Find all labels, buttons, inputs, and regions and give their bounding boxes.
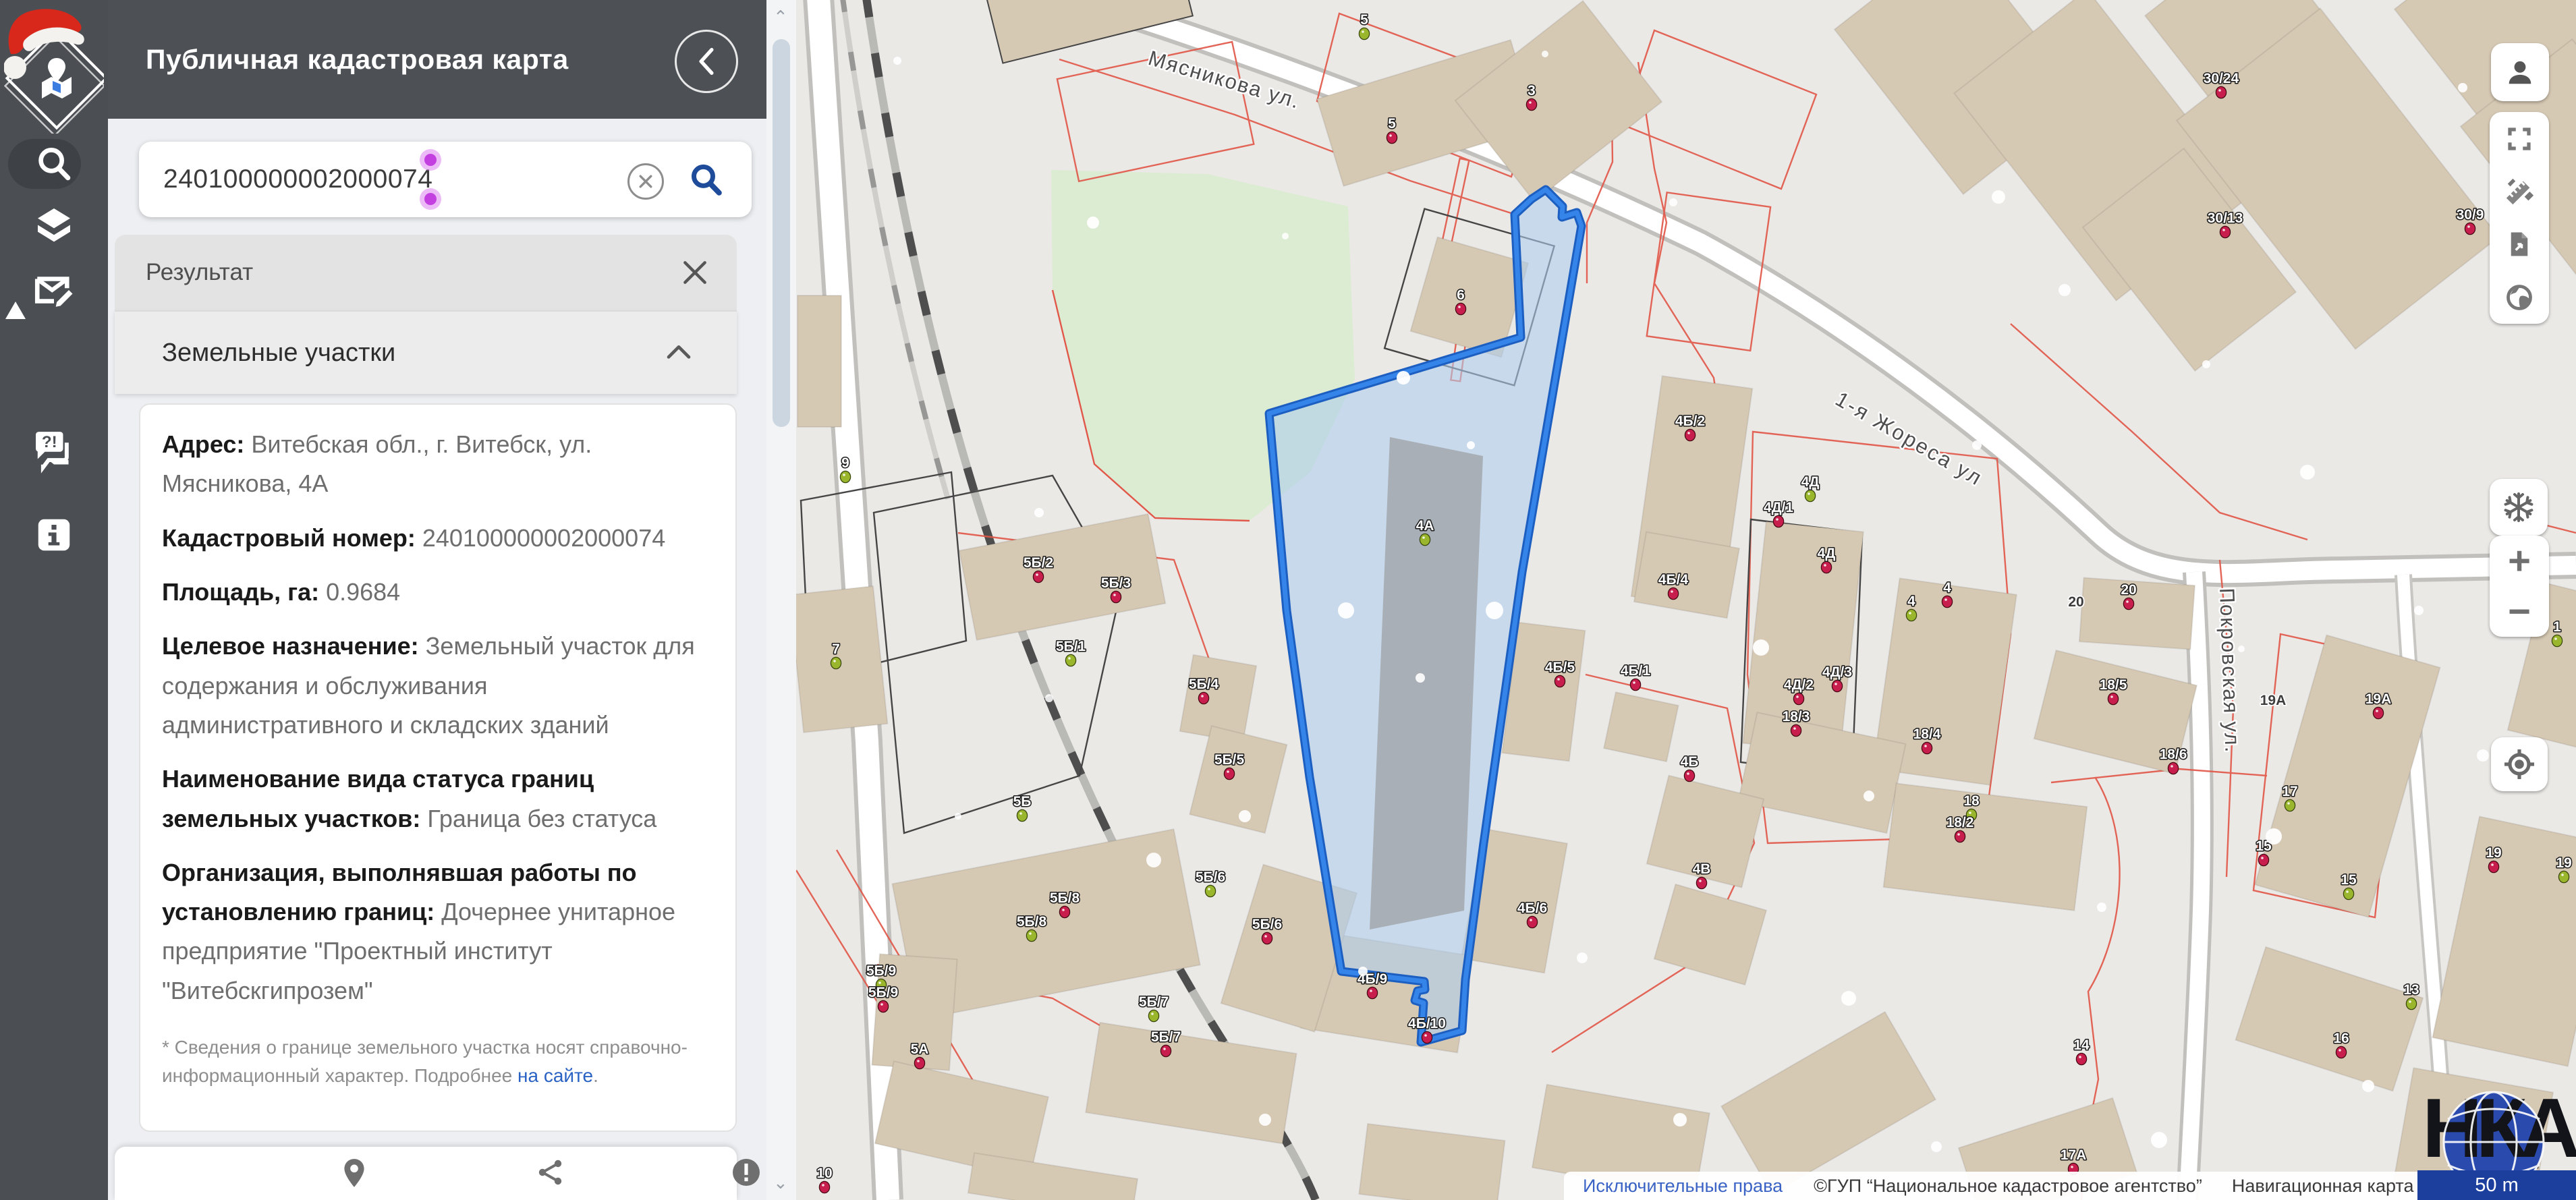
sidebar-item-search[interactable] — [0, 134, 108, 194]
text-selection-handle-bottom[interactable] — [424, 193, 437, 205]
map-attribution: Исключительные права ©ГУП “Национальное … — [1564, 1172, 2417, 1200]
svg-text:4Б/10: 4Б/10 — [1408, 1016, 1446, 1031]
scrollbar-thumb[interactable] — [773, 39, 790, 427]
svg-text:5А: 5А — [911, 1041, 929, 1057]
map-marker: 6 — [1456, 287, 1465, 314]
svg-text:5Б/6: 5Б/6 — [1252, 917, 1282, 932]
show-on-map-button[interactable] — [337, 1156, 371, 1193]
search-field[interactable]: 240100000002000074 — [139, 142, 752, 217]
parcel-field-0: Адрес: Витебская обл., г. Витебск, ул. М… — [162, 425, 714, 504]
svg-text:6: 6 — [1457, 287, 1465, 303]
user-button[interactable] — [2491, 43, 2549, 101]
map-marker: 19А — [2260, 693, 2287, 708]
close-icon — [637, 173, 654, 190]
map-canvas[interactable]: Мясникова ул.1-я Жореса улПокровская ул.… — [796, 0, 2576, 1200]
feedback-icon: ?! — [30, 426, 78, 474]
sidebar-item-info[interactable] — [0, 505, 108, 565]
parcel-field-1: Кадастровый номер: 240100000002000074 — [162, 519, 714, 558]
svg-text:19: 19 — [2556, 855, 2571, 871]
svg-text:19А: 19А — [2365, 691, 2392, 707]
svg-text:9: 9 — [841, 455, 849, 471]
measure-edit-icon — [32, 268, 76, 312]
app-logo[interactable] — [4, 5, 104, 134]
close-icon — [680, 258, 710, 287]
layers-icon — [32, 203, 76, 246]
scroll-down-arrow[interactable]: ⌄ — [773, 1172, 788, 1193]
svg-text:5Б/6: 5Б/6 — [1196, 869, 1225, 885]
svg-text:4Б/1: 4Б/1 — [1621, 663, 1651, 679]
svg-text:13: 13 — [2403, 982, 2419, 998]
nka-logo: НКА — [2418, 1077, 2576, 1170]
panel-header: Публичная кадастровая карта — [108, 0, 766, 119]
svg-text:18/6: 18/6 — [2160, 747, 2187, 762]
svg-text:7: 7 — [832, 641, 840, 657]
svg-text:4Б/5: 4Б/5 — [1545, 660, 1575, 675]
svg-text:5Б/3: 5Б/3 — [1101, 575, 1131, 591]
share-icon — [534, 1156, 567, 1189]
svg-text:4Д: 4Д — [1818, 546, 1836, 561]
panel-scrollbar: ⌃ ⌄ — [766, 0, 796, 1200]
measure-button[interactable] — [2490, 165, 2549, 218]
svg-text:4А: 4А — [1416, 518, 1434, 534]
map-marker: 20 — [2068, 594, 2083, 610]
parcel-field-5: Организация, выполнявшая работы по устан… — [162, 853, 714, 1010]
svg-text:4Д/1: 4Д/1 — [1764, 500, 1793, 515]
svg-text:18/5: 18/5 — [2100, 677, 2127, 693]
share-button[interactable] — [534, 1156, 567, 1192]
svg-text:5Б/9: 5Б/9 — [868, 985, 898, 1000]
svg-text:19: 19 — [2486, 845, 2501, 861]
svg-text:4Д: 4Д — [1801, 474, 1820, 490]
map-marker: 1 — [2552, 619, 2562, 646]
svg-text:20: 20 — [2121, 582, 2136, 598]
warning-icon — [730, 1156, 762, 1189]
svg-text:5Б/9: 5Б/9 — [866, 963, 896, 979]
svg-text:18/2: 18/2 — [1947, 815, 1974, 830]
close-result-button[interactable] — [680, 258, 710, 287]
map-marker: 5 — [1360, 12, 1369, 39]
globe-button[interactable] — [2490, 270, 2549, 324]
svg-text:5Б/7: 5Б/7 — [1139, 994, 1169, 1010]
svg-text:4: 4 — [1943, 580, 1951, 596]
app-window: Мясникова ул.1-я Жореса улПокровская ул.… — [0, 0, 2576, 1200]
chevron-up-icon[interactable] — [665, 341, 692, 365]
search-button[interactable] — [687, 161, 725, 198]
panel-footer-toolbar — [115, 1147, 737, 1200]
svg-text:4Б/4: 4Б/4 — [1658, 572, 1689, 588]
sidebar-item-layers[interactable] — [0, 194, 108, 255]
svg-text:5Б: 5Б — [1013, 794, 1032, 809]
minus-icon: − — [2508, 592, 2531, 631]
section-title: Земельные участки — [162, 339, 395, 368]
map-marker: 4 — [1942, 580, 1952, 607]
sidebar-rail: ?! — [0, 0, 108, 1200]
location-pin-icon — [337, 1156, 371, 1190]
svg-text:18: 18 — [1963, 793, 1980, 809]
svg-text:17А: 17А — [2061, 1147, 2087, 1163]
svg-text:18/3: 18/3 — [1783, 709, 1810, 724]
map-marker: 3 — [1527, 83, 1536, 110]
svg-text:16: 16 — [2333, 1031, 2349, 1046]
export-icon — [2505, 230, 2533, 258]
clear-search-button[interactable] — [627, 163, 664, 200]
svg-text:5Б/5: 5Б/5 — [1214, 752, 1245, 768]
svg-text:5Б/4: 5Б/4 — [1189, 677, 1219, 692]
map-tools-group — [2490, 112, 2549, 324]
plus-icon: + — [2508, 542, 2531, 581]
search-icon — [33, 143, 75, 185]
globe-icon — [2504, 283, 2534, 312]
nav-map-text: Навигационная карта — [2232, 1176, 2414, 1197]
svg-text:4В: 4В — [1693, 861, 1711, 877]
parcel-fields: Адрес: Витебская обл., г. Витебск, ул. М… — [162, 425, 714, 1010]
svg-text:4Д/3: 4Д/3 — [1822, 664, 1852, 680]
sidebar-item-feedback[interactable]: ?! — [0, 420, 108, 480]
svg-text:17: 17 — [2282, 784, 2297, 799]
map-marker: 7 — [831, 641, 841, 668]
active-panel-pointer — [5, 302, 26, 319]
svg-text:30/9: 30/9 — [2457, 207, 2484, 223]
parcel-field-4: Наименование вида статуса границ земельн… — [162, 760, 714, 838]
svg-text:3: 3 — [1528, 83, 1536, 98]
svg-text:5Б/1: 5Б/1 — [1056, 639, 1086, 654]
zoom-out-button[interactable]: − — [2490, 586, 2549, 637]
svg-text:4: 4 — [1907, 594, 1915, 609]
scroll-up-arrow[interactable]: ⌃ — [773, 7, 788, 28]
locate-button[interactable] — [2491, 737, 2548, 791]
zoom-in-button[interactable]: + — [2490, 536, 2549, 586]
svg-text:20: 20 — [2068, 594, 2083, 610]
svg-text:30/13: 30/13 — [2208, 210, 2243, 226]
user-icon — [2504, 57, 2536, 88]
svg-text:5Б/7: 5Б/7 — [1151, 1029, 1181, 1045]
map-marker: 9 — [841, 455, 850, 482]
section-land-parcels[interactable]: Земельные участки — [115, 310, 737, 394]
page-title: Публичная кадастровая карта — [146, 44, 569, 76]
parcel-details-card: Адрес: Витебская обл., г. Витебск, ул. М… — [139, 403, 737, 1132]
footnote: * Сведения о границе земельного участка … — [162, 1033, 714, 1090]
result-header: Результат — [115, 235, 737, 310]
svg-text:5Б/8: 5Б/8 — [1017, 914, 1047, 930]
fullscreen-icon — [2505, 125, 2533, 153]
svg-text:4Б: 4Б — [1681, 754, 1699, 770]
scale-indicator: 50 m — [2417, 1170, 2576, 1200]
scale-value: 50 m — [2475, 1174, 2518, 1197]
svg-text:5: 5 — [1360, 12, 1368, 28]
export-button[interactable] — [2490, 218, 2549, 270]
parcel-field-3: Целевое назначение: Земельный участок дл… — [162, 627, 714, 745]
text-selection-handle-top[interactable] — [424, 154, 437, 166]
svg-text:4Б/6: 4Б/6 — [1517, 901, 1547, 916]
measure-icon — [2504, 176, 2535, 207]
report-error-button[interactable] — [730, 1156, 762, 1192]
site-link[interactable]: на сайте — [517, 1065, 593, 1086]
svg-text:5Б/2: 5Б/2 — [1024, 555, 1053, 571]
map-marker: 5 — [1387, 116, 1397, 143]
result-title: Результат — [146, 259, 253, 286]
search-input[interactable]: 240100000002000074 — [163, 165, 432, 194]
fullscreen-button[interactable] — [2490, 112, 2549, 165]
rights-link[interactable]: Исключительные права — [1583, 1176, 1783, 1197]
chevron-left-icon — [695, 47, 718, 76]
svg-text:14: 14 — [2073, 1037, 2090, 1053]
map-marker: 4 — [1907, 594, 1916, 621]
locate-icon — [2503, 748, 2536, 780]
sidebar-item-apply[interactable] — [0, 260, 108, 320]
svg-text:5Б/8: 5Б/8 — [1050, 890, 1080, 906]
svg-text:1: 1 — [2553, 619, 2561, 635]
parcel-field-2: Площадь, га: 0.9684 — [162, 573, 714, 612]
svg-text:30/24: 30/24 — [2204, 71, 2239, 86]
svg-text:10: 10 — [816, 1166, 832, 1181]
svg-text:5: 5 — [1388, 116, 1396, 132]
svg-text:18/4: 18/4 — [1913, 726, 1941, 742]
zoom-controls: + − — [2490, 536, 2549, 637]
agency-text: ©ГУП “Национальное кадастровое агентство… — [1814, 1176, 2202, 1197]
collapse-panel-button[interactable] — [675, 30, 738, 93]
snowflake-icon — [2502, 491, 2535, 523]
svg-text:15: 15 — [2341, 872, 2357, 888]
svg-text:4Д/2: 4Д/2 — [1784, 677, 1814, 693]
svg-text:?!: ?! — [42, 433, 57, 451]
search-submit-icon — [687, 161, 725, 198]
snow-toggle-button[interactable] — [2490, 479, 2548, 536]
info-icon — [33, 514, 75, 556]
svg-text:19А: 19А — [2260, 693, 2287, 708]
svg-text:4Б/2: 4Б/2 — [1675, 413, 1705, 429]
